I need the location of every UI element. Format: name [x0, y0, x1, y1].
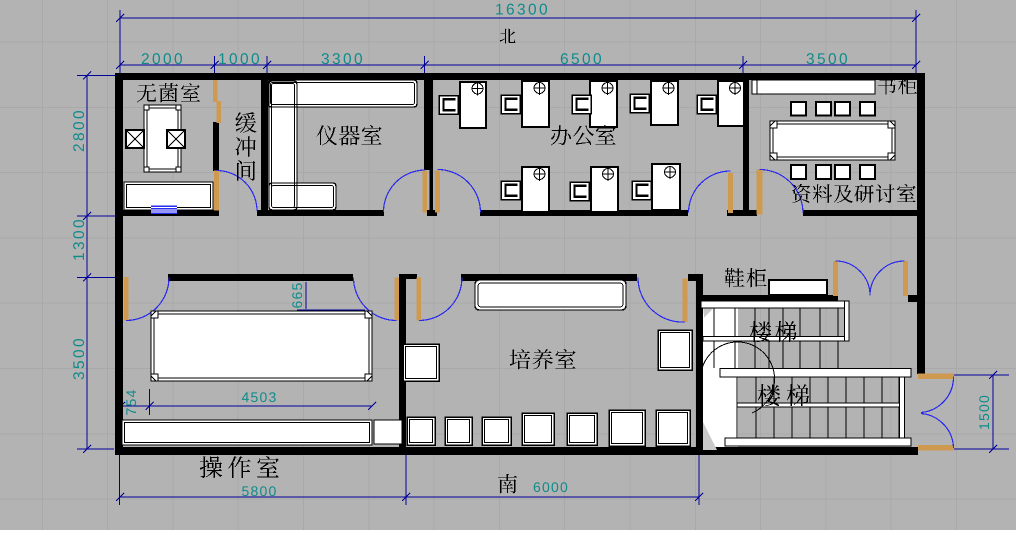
svg-text:665: 665 — [289, 282, 305, 309]
svg-text:2800: 2800 — [71, 108, 88, 152]
svg-text:6000: 6000 — [533, 479, 569, 495]
svg-text:3300: 3300 — [321, 51, 365, 68]
svg-text:16300: 16300 — [495, 2, 550, 19]
svg-text:5800: 5800 — [242, 483, 278, 499]
svg-text:3500: 3500 — [71, 336, 88, 380]
svg-text:2000: 2000 — [141, 51, 185, 68]
svg-text:6500: 6500 — [560, 51, 604, 68]
svg-text:1000: 1000 — [218, 51, 262, 68]
svg-text:1500: 1500 — [976, 394, 992, 430]
svg-text:4503: 4503 — [242, 389, 278, 405]
svg-text:3500: 3500 — [806, 51, 850, 68]
svg-text:754: 754 — [123, 389, 139, 416]
svg-text:1300: 1300 — [71, 217, 88, 261]
